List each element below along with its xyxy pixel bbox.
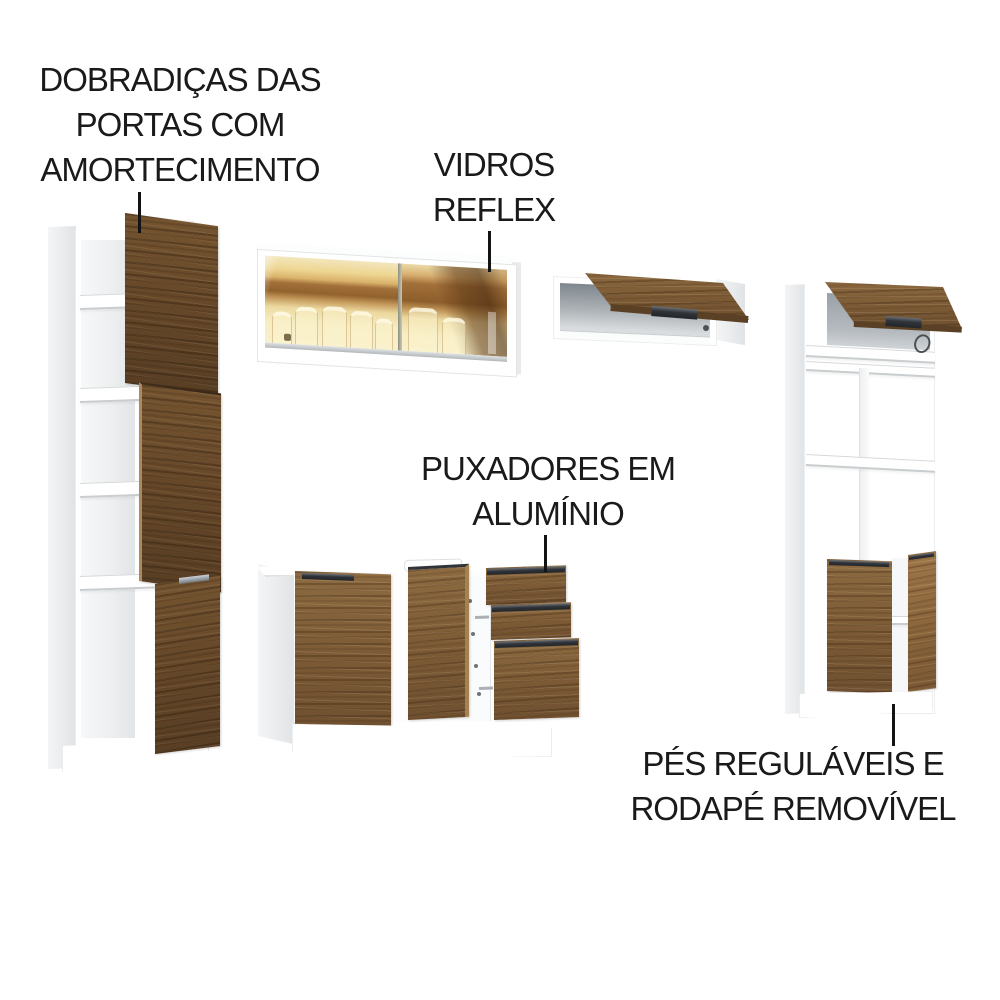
jar-reflection	[272, 311, 292, 347]
door-panel-bottom-left	[827, 559, 892, 693]
door-knob	[284, 334, 291, 341]
jar-reflection	[375, 318, 393, 353]
glass-highlight	[488, 312, 496, 354]
removable-plinth	[292, 719, 552, 757]
jar-reflection	[350, 311, 373, 352]
drawer-slide-rail	[479, 687, 493, 690]
pointer-line-hinges	[138, 192, 141, 233]
door-panel-middle	[139, 382, 221, 593]
callout-glass: VIDROS REFLEX	[404, 142, 584, 232]
glide-screw	[471, 632, 475, 636]
cabinet-side-panel	[785, 284, 805, 714]
door-panel-top	[125, 213, 218, 396]
jar-reflection	[295, 306, 318, 348]
glide-screw	[474, 664, 478, 668]
drawer-slide-rail	[475, 616, 489, 619]
glide-screw	[477, 692, 481, 696]
shelf	[892, 616, 909, 625]
cabinet-side-panel	[258, 564, 295, 745]
cabinet-side-panel	[48, 226, 76, 769]
pointer-line-glass	[488, 231, 491, 272]
cabinet-interior	[892, 558, 909, 694]
door-panel-left	[295, 571, 391, 727]
jar-reflection	[442, 317, 466, 357]
pointer-line-feet	[892, 704, 895, 746]
door-panel-bottom-right-open	[908, 551, 936, 692]
callout-handles: PUXADORES EM ALUMÍNIO	[398, 446, 698, 536]
drawer-front-bottom	[494, 638, 579, 720]
callout-feet: PÉS REGULÁVEIS E RODAPÉ REMOVÍVEL	[613, 741, 973, 831]
jar-reflection	[408, 307, 438, 356]
pointer-line-handles	[544, 535, 547, 572]
door-panel-bottom	[155, 576, 220, 754]
hinge-dot	[703, 325, 709, 331]
kitchen-cabinet-feature-diagram: DOBRADIÇAS DAS PORTAS COM AMORTECIMENTO …	[0, 0, 1000, 1000]
callout-hinges: DOBRADIÇAS DAS PORTAS COM AMORTECIMENTO	[20, 57, 340, 192]
cabinet-frame	[257, 249, 517, 377]
door-panel-open	[408, 564, 469, 720]
jar-reflection	[322, 306, 347, 350]
